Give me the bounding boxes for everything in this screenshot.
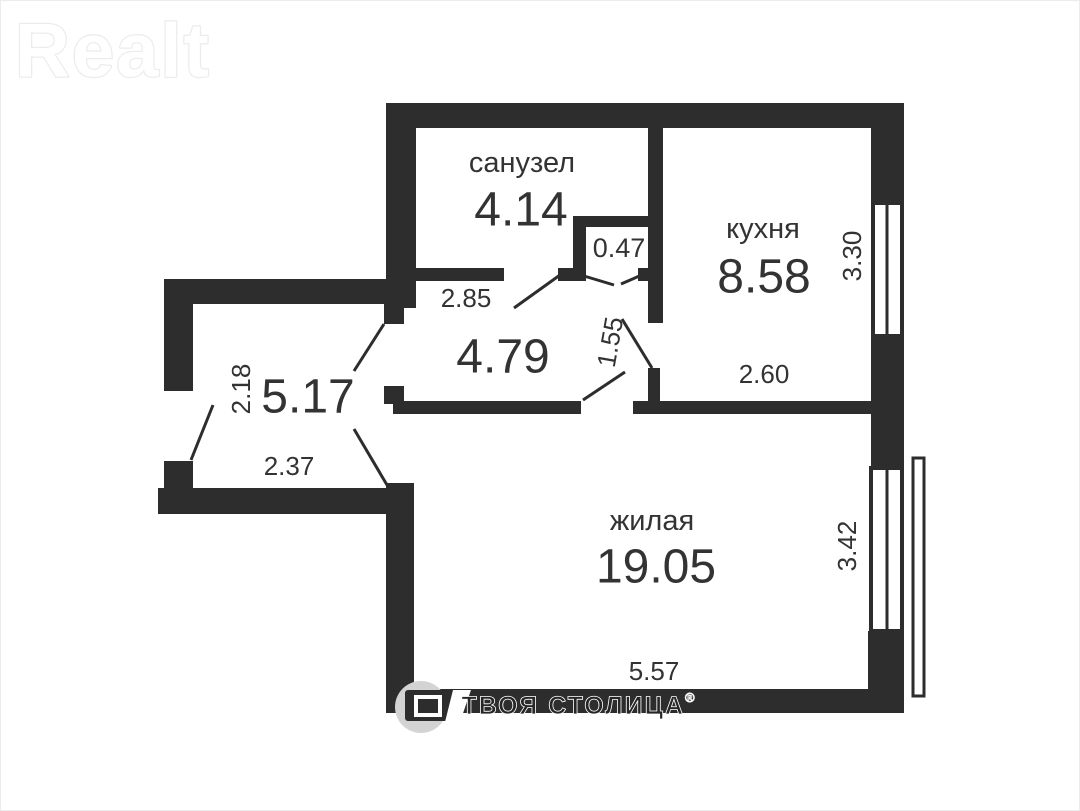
wall-kitchen-bottom bbox=[633, 401, 904, 414]
bathroom-area: 4.14 bbox=[474, 184, 567, 237]
dim-living-depth: 3.42 bbox=[832, 521, 862, 572]
wall-storage-top bbox=[573, 216, 651, 227]
wall-stub-entry-hallway bbox=[384, 304, 404, 324]
kitchen-label: кухня bbox=[726, 213, 800, 245]
wall-top bbox=[386, 103, 904, 128]
wall-hallway-bottom bbox=[393, 401, 581, 414]
kitchen-area: 8.58 bbox=[717, 251, 810, 304]
storage-door-swing-left bbox=[584, 276, 614, 285]
dim-kitchen-door-width: 1.55 bbox=[591, 314, 629, 369]
entry-area: 5.17 bbox=[261, 371, 354, 424]
living-door-swing bbox=[583, 372, 625, 400]
watermark-company-text: ТВОЯ СТОЛИЦА® bbox=[461, 690, 696, 721]
wall-entry-bottom bbox=[158, 488, 391, 514]
wall-stub-entry-living bbox=[384, 386, 404, 404]
living-label: жилая bbox=[610, 505, 694, 537]
wall-bathroom-bottom bbox=[414, 268, 504, 281]
wall-entry-top bbox=[164, 279, 386, 304]
dim-bathroom-width: 2.85 bbox=[441, 283, 492, 313]
floor-plan-svg: Realt bbox=[1, 1, 1080, 811]
wall-living-left bbox=[386, 483, 414, 713]
hallway-area: 4.79 bbox=[456, 331, 549, 384]
entry-hallway-door-swing bbox=[354, 324, 384, 371]
dim-kitchen-depth: 3.30 bbox=[837, 231, 867, 282]
entrance-door-swing bbox=[191, 405, 213, 460]
bathroom-door-swing bbox=[514, 270, 567, 308]
dim-entry-width: 2.37 bbox=[264, 451, 315, 481]
wall-entry-left-lower bbox=[164, 461, 193, 488]
dim-kitchen-width: 2.60 bbox=[739, 359, 790, 389]
dim-entry-depth: 2.18 bbox=[226, 364, 256, 415]
dim-living-width: 5.57 bbox=[629, 656, 680, 686]
wall-kitchen-left-stub bbox=[648, 368, 660, 401]
wall-kitchen-left bbox=[648, 126, 663, 323]
watermark: ТВОЯ СТОЛИЦА® bbox=[395, 681, 697, 733]
wall-entry-left-upper bbox=[164, 279, 193, 391]
entry-living-door-swing bbox=[354, 429, 387, 485]
storage-area: 0.47 bbox=[593, 233, 646, 263]
labels-layer: санузел 4.14 0.47 кухня 8.58 4.79 5.17 ж… bbox=[226, 147, 867, 686]
living-area: 19.05 bbox=[596, 541, 716, 594]
realt-logo: Realt bbox=[15, 9, 211, 94]
wall-topleft-vertical bbox=[386, 103, 416, 308]
floorplan-page: Realt bbox=[0, 0, 1080, 811]
wall-right-upper bbox=[871, 103, 904, 203]
bathroom-label: санузел bbox=[469, 147, 575, 179]
balcony-glazing bbox=[913, 458, 924, 696]
